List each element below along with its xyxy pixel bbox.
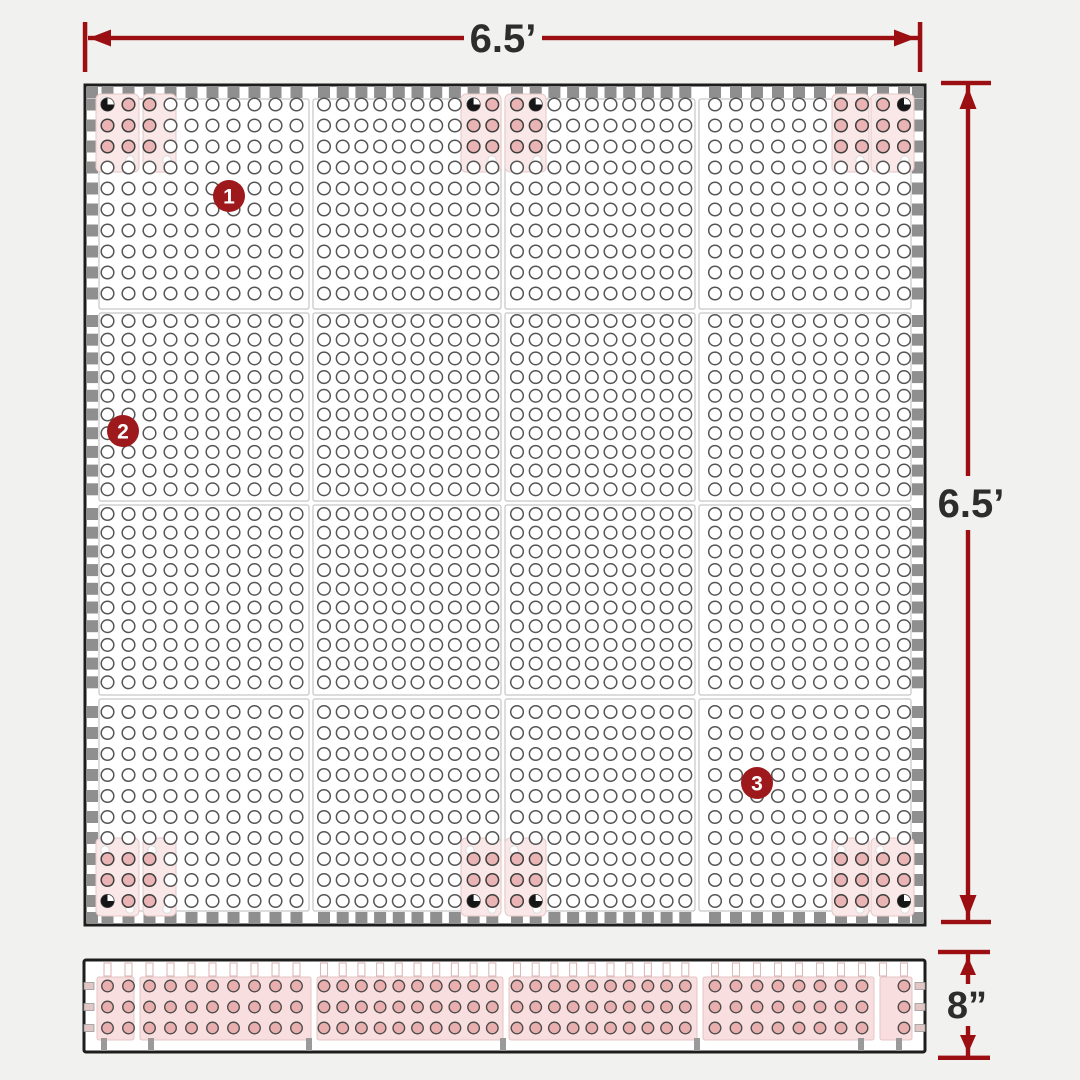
pegboard-front-view	[85, 85, 925, 925]
width-dimension-label: 6.5’	[470, 17, 537, 61]
height-dimension-label: 6.5’	[938, 482, 1005, 526]
width-dimension: 6.5’	[83, 14, 923, 72]
callout-marker-2[interactable]: 2	[107, 415, 139, 447]
depth-dimension: 8”	[938, 950, 995, 1060]
callout-marker-number: 1	[223, 186, 235, 209]
depth-dimension-label: 8”	[947, 985, 987, 1027]
callout-marker-1[interactable]: 1	[213, 180, 245, 212]
pegboard-diagram: 6.5’ 6.5’ 8” 123	[0, 0, 1080, 1080]
diagram-canvas: 6.5’ 6.5’ 8” 123	[0, 0, 1080, 1080]
pegboard-side-view	[84, 960, 925, 1052]
callout-marker-number: 2	[117, 421, 129, 444]
height-dimension: 6.5’	[934, 81, 1040, 924]
callout-marker-number: 3	[751, 773, 763, 796]
callout-marker-3[interactable]: 3	[741, 767, 773, 799]
